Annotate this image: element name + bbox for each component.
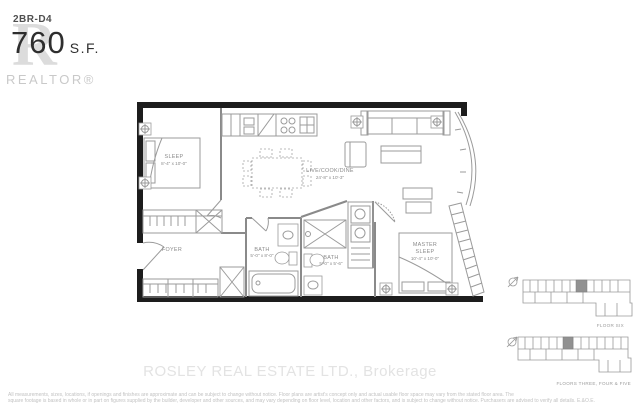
brokerage-watermark: ROSLEY REAL ESTATE LTD., Brokerage [0,363,580,380]
bedroom-closet [143,210,222,233]
bath-main-fixtures [249,224,298,296]
dims-bath-main: 5'-0" x 8'-0" [250,253,274,258]
disclaimer-line-2: square footage is based in whole or in p… [8,398,632,404]
living-armchair [345,142,366,167]
laundry-closet [348,202,373,268]
dims-sleep: 8'-4" x 10'-0" [161,161,187,166]
dims-bath-ensuite: 5'-0" x 5'-6" [319,261,343,266]
foyer-closet [143,267,244,297]
dims-live-cook-dine: 24'-8" x 10'-3" [316,175,345,180]
balcony-hatch-strip [449,203,484,296]
label-master-line2: SLEEP [416,249,435,255]
label-foyer: FOYER [162,247,182,253]
living-tv-table [381,146,421,163]
label-master-line1: MASTER [413,242,437,248]
kitchen-counter [222,114,317,136]
floor-plan-drawing: SLEEP 8'-4" x 10'-0" LIVE/COOK/DINE 24'-… [0,0,640,417]
structural-columns [139,116,458,295]
label-sleep: SLEEP [165,154,184,160]
keyplan-floors-345-label: FLOORS THREE, FOUR & FIVE [556,381,631,386]
curved-window [455,112,476,206]
north-arrow-icon [507,337,517,347]
legal-disclaimer: All measurements, sizes, locations, if o… [8,392,632,404]
master-console [403,188,432,213]
keyplan-floor-six-label: FLOOR SIX [597,323,624,328]
highlighted-unit [576,280,587,292]
north-arrow-icon [508,277,518,287]
highlighted-unit [563,337,573,349]
dims-master: 10'-4" x 10'-0" [411,256,440,261]
label-live-cook-dine: LIVE/COOK/DINE [306,168,354,174]
floorplan-page: R 2BR-D4 760S.F. REALTOR® [0,0,640,417]
keyplan-floor-six: FLOOR SIX [508,277,632,328]
dining-table [243,149,311,197]
